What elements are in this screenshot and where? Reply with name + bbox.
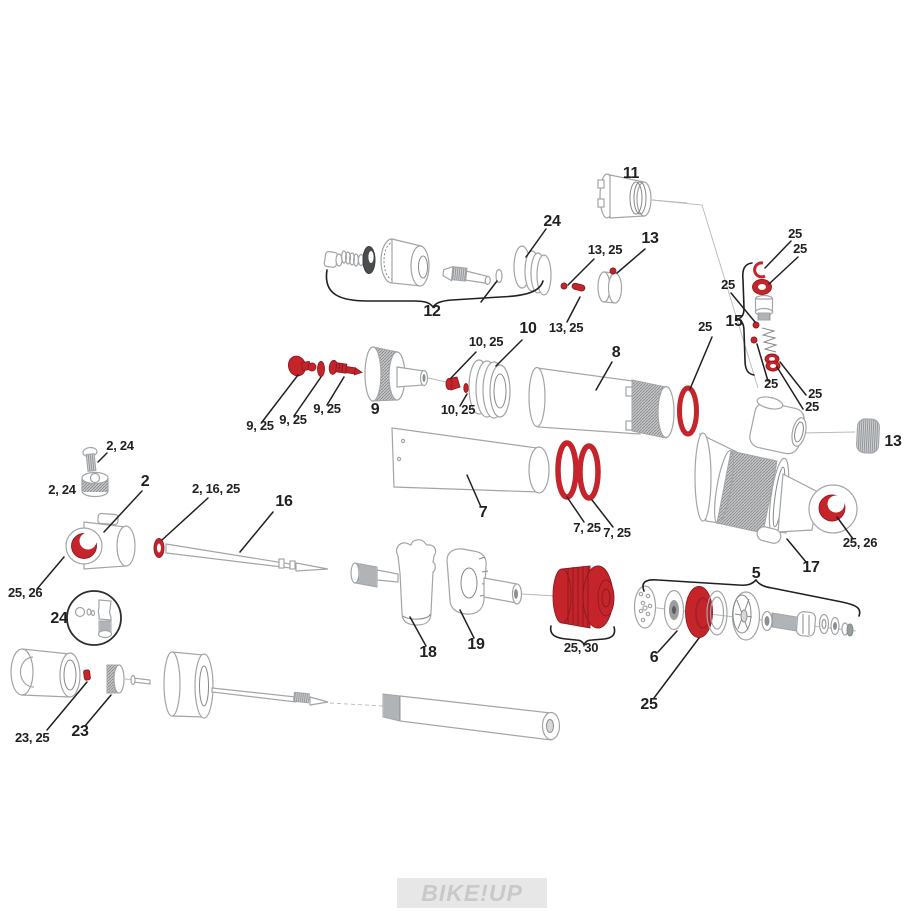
callout-10-25-top: 10, 25 xyxy=(469,334,503,349)
part-9-piston-group xyxy=(286,347,427,401)
part-23-mount-group xyxy=(11,649,124,697)
body-eyelet xyxy=(809,485,857,533)
valve-piston xyxy=(756,296,773,321)
callout-25-30: 25, 30 xyxy=(564,640,598,655)
callout-12: 12 xyxy=(423,303,441,320)
red-pin-2 xyxy=(751,337,757,343)
red-dot-on-cap xyxy=(610,268,616,274)
part-5-hardware-row xyxy=(635,586,854,640)
callout-13-25-top: 13, 25 xyxy=(588,242,622,257)
watermark: BIKE!UP xyxy=(397,878,547,908)
piston xyxy=(365,347,428,401)
callout-25-26-right: 25, 26 xyxy=(843,535,877,550)
oring-and-rings-24 xyxy=(514,246,551,295)
callout-25-26-left: 25, 26 xyxy=(8,585,42,600)
damper-piston xyxy=(733,592,760,640)
needle-screw xyxy=(443,266,492,285)
small-ring xyxy=(762,612,772,631)
callout-2: 2 xyxy=(141,473,150,490)
callout-8: 8 xyxy=(612,344,621,361)
callout-16: 16 xyxy=(275,493,293,510)
red-pin-1 xyxy=(753,322,759,328)
callout-9-25-b: 9, 25 xyxy=(279,412,306,427)
part-17-shock-body xyxy=(695,395,857,545)
red-piston-seal-25 xyxy=(686,587,713,638)
callout-18: 18 xyxy=(419,644,437,661)
callout-25-circlip: 25 xyxy=(788,226,802,241)
callout-19: 19 xyxy=(467,636,485,653)
callout-7-25-a: 7, 25 xyxy=(573,520,600,535)
leader-11 xyxy=(652,200,758,388)
red-pin-23-25 xyxy=(83,670,90,681)
part-2-eyelet-group xyxy=(66,447,135,569)
knob-23 xyxy=(107,665,124,693)
red-oring-2-16-25 xyxy=(154,539,164,558)
part-18-cap xyxy=(397,540,436,625)
callout-25-pin-2: 25 xyxy=(764,376,778,391)
diagram-svg: 11 24 12 13, 25 13 13, 25 25 25 25 15 25… xyxy=(0,0,911,911)
red-oring xyxy=(753,280,772,295)
part-24-valve-detail-circle xyxy=(67,591,121,645)
callout-2-24-top: 2, 24 xyxy=(106,438,134,453)
eyelet-body-2 xyxy=(66,513,135,569)
callout-24-top: 24 xyxy=(543,213,561,230)
callout-23: 23 xyxy=(71,723,89,740)
red-cone xyxy=(446,377,460,390)
screw-2-24 xyxy=(83,447,99,472)
brace-12 xyxy=(326,270,543,307)
watermark-text: BIKE!UP xyxy=(421,880,523,906)
callout-10-25-bottom: 10, 25 xyxy=(441,402,475,417)
part-13-top-cap xyxy=(598,268,622,303)
red-tiny-seal xyxy=(464,384,468,393)
callout-25-body-oring: 25 xyxy=(698,319,712,334)
washer-6 xyxy=(665,591,684,630)
part-18-19-group xyxy=(351,540,522,625)
part-13-25-red-pin-set xyxy=(561,283,586,292)
callout-13-top: 13 xyxy=(641,230,659,247)
damper-shaft xyxy=(383,694,560,740)
callout-25-oring-15: 25 xyxy=(793,241,807,256)
callout-25-pin-1: 25 xyxy=(721,277,735,292)
red-oring-part8 xyxy=(680,388,697,434)
callout-25-glide-2: 25 xyxy=(805,399,819,414)
mount-bolt xyxy=(772,611,816,636)
callout-11: 11 xyxy=(623,165,640,182)
bolt-washers xyxy=(820,615,854,637)
red-circlip xyxy=(755,263,765,277)
white-oring xyxy=(707,591,727,635)
callout-13-right: 13 xyxy=(884,433,902,450)
red-oring-7a xyxy=(558,443,576,497)
perforated-disc xyxy=(635,586,656,628)
callout-5: 5 xyxy=(752,565,761,582)
callout-2-24-left: 2, 24 xyxy=(48,482,76,497)
red-grommet xyxy=(286,354,316,378)
callout-6: 6 xyxy=(650,649,659,666)
callout-15: 15 xyxy=(725,313,743,330)
callout-13-25-mid: 13, 25 xyxy=(549,320,583,335)
callout-7: 7 xyxy=(479,504,488,521)
red-screw xyxy=(328,360,363,378)
callout-25-seal: 25 xyxy=(640,696,658,713)
callout-7-25-b: 7, 25 xyxy=(603,525,630,540)
spring xyxy=(342,251,359,266)
rebound-needle-shaft xyxy=(131,652,328,718)
callout-2-16-25: 2, 16, 25 xyxy=(192,481,240,496)
callout-23-25: 23, 25 xyxy=(15,730,49,745)
part-25-30-red-bumper xyxy=(553,566,614,628)
callout-9-25-c: 9, 25 xyxy=(246,418,273,433)
callout-24-circle: 24 xyxy=(50,610,68,627)
callout-10: 10 xyxy=(519,320,537,337)
red-disc xyxy=(318,362,325,377)
dark-disc xyxy=(363,247,375,274)
knob-2-24 xyxy=(82,473,108,497)
piston-body xyxy=(381,239,429,286)
red-ball xyxy=(561,283,567,289)
callout-17: 17 xyxy=(802,559,820,576)
callout-9: 9 xyxy=(371,401,380,418)
bottom-out-bumper xyxy=(164,652,213,718)
callout-9-25-a: 9, 25 xyxy=(313,401,340,416)
part-16-needle xyxy=(154,539,328,572)
red-oring-7b xyxy=(580,446,598,498)
red-pin xyxy=(571,283,585,292)
bolt xyxy=(324,251,342,268)
part-15-valve-stack xyxy=(751,263,780,371)
spring xyxy=(762,328,776,352)
part-8-cylinder xyxy=(529,368,674,439)
part-12-damper-piston-assembly xyxy=(324,239,551,295)
exploded-diagram-canvas: 11 24 12 13, 25 13 13, 25 25 25 25 15 25… xyxy=(0,0,911,911)
part-13-hex-cap xyxy=(856,418,880,453)
